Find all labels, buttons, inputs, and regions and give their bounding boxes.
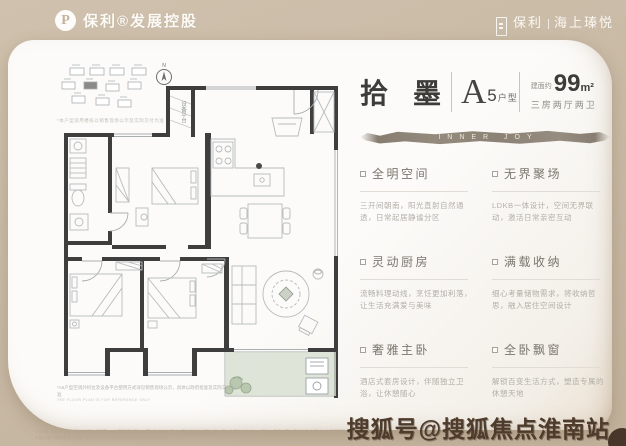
brand-left: P 保利®发展控股 [55, 10, 198, 31]
unit-letter: A [461, 76, 486, 108]
kitchen [211, 118, 302, 196]
page: P 保利®发展控股 保利海上瑧悦 · · · · · · · [0, 0, 626, 446]
room-layout: 三房两厅两卫 [531, 98, 597, 111]
area-number: 99 [554, 73, 581, 95]
plan-disclaimer-line1: *A5户型空调外机位及设备平台使用方式详见销售现场公示，具体以政府批复及实际交付… [57, 384, 237, 398]
divider [451, 72, 452, 112]
dining-table [240, 204, 290, 238]
divider [492, 367, 600, 368]
logo-letter: P [61, 13, 70, 29]
feature-item: 灵动厨房 流畅料理动线，烹饪更加利落，让生活充满爱与美味 [360, 253, 484, 341]
banner-text: INNER JOY [431, 134, 538, 141]
feature-desc: 酒店式套房设计，伴随独立卫浴，让休憩随心 [360, 376, 476, 400]
feature-desc: 细心考量储物需求，将收纳哲思，融入居住空间设计 [492, 288, 608, 312]
divider [492, 279, 600, 280]
divider [360, 191, 468, 192]
feature-title: 全明空间 [372, 165, 430, 182]
feature-desc: 解锁百变生活方式，塑造专属的休憩天地 [492, 376, 608, 400]
brand-right-subtext: · · · · · · · [546, 32, 614, 36]
bedroom-mid [116, 168, 198, 226]
unit-title-row: 拾 墨 A5户型 建面约99m² 三房两厅两卫 [360, 66, 614, 118]
compass-label: N [162, 63, 166, 69]
square-bullet-icon [360, 171, 366, 177]
brand-right-poly: 保利 [513, 15, 543, 30]
brand-right: 保利海上瑧悦 · · · · · · · [496, 16, 614, 37]
bedroom-master [70, 262, 142, 328]
brush-banner: INNER JOY [360, 130, 610, 145]
balcony [225, 352, 336, 396]
feature-desc: LDKB一体设计，空间无界联动，激活日常亲密互动 [492, 200, 608, 224]
main-card: N *本户型适用楼栋以销售现场公示及实际交付为准 [8, 40, 612, 430]
feature-title: 全卧飘窗 [504, 341, 562, 358]
feature-desc: 三开间朝南，阳光直射自然通透，日常起居静谧分区 [360, 200, 476, 224]
plan-disclaimer-line2: THE FLOOR PLAN IS FOR REFERENCE ONLY [57, 398, 237, 404]
divider [519, 72, 520, 112]
bathroom-fixtures [70, 139, 88, 230]
floor-plan: 设备平台 [56, 82, 348, 402]
feature-item: 全明空间 三开间朝南，阳光直射自然通透，日常起居静谧分区 [360, 165, 484, 253]
door-arcs [82, 90, 318, 281]
feature-title: 灵动厨房 [372, 253, 430, 270]
feature-title: 奢雅主卧 [372, 341, 430, 358]
unit-type-label: 户型 [498, 91, 518, 104]
equipment-platform-label: 设备平台 [180, 100, 187, 125]
entry-closet [314, 92, 334, 132]
brand-left-text: 保利®发展控股 [83, 10, 198, 31]
walls [64, 86, 338, 398]
feature-item: 无界聚场 LDKB一体设计，空间无界联动，激活日常亲密互动 [492, 165, 616, 253]
unit-info: 拾 墨 A5户型 建面约99m² 三房两厅两卫 INNER JOY 全 [360, 66, 614, 429]
divider [360, 367, 468, 368]
feature-title: 满载收纳 [504, 253, 562, 270]
bedroom-second [148, 264, 222, 328]
brand-right-text: 保利海上瑧悦 [513, 16, 614, 30]
feature-title: 无界聚场 [504, 165, 562, 182]
seal-icon [496, 17, 507, 36]
poly-logo-icon: P [55, 10, 76, 31]
brand-right-project: 海上瑧悦 [554, 15, 614, 30]
unit-type: A5户型 [461, 76, 518, 108]
feature-desc: 流畅料理动线，烹饪更加利落，让生活充满爱与美味 [360, 288, 476, 312]
sohu-watermark: 搜狐号@搜狐焦点淮南站 [347, 410, 610, 444]
unit-name: 拾 墨 [360, 72, 450, 112]
corner-seal-icon [608, 428, 626, 446]
divider [548, 19, 549, 29]
divider [360, 279, 468, 280]
equipment-platform: 设备平台 [170, 96, 191, 128]
feature-grid: 全明空间 三开间朝南，阳光直射自然通透，日常起居静谧分区 无界聚场 LDKB一体… [360, 165, 614, 429]
area-unit: m² [580, 82, 593, 94]
living-room [232, 266, 323, 336]
square-bullet-icon [360, 347, 366, 353]
unit-area: 建面约99m² 三房两厅两卫 [531, 73, 597, 111]
plan-disclaimer: *A5户型空调外机位及设备平台使用方式详见销售现场公示，具体以政府批复及实际交付… [57, 384, 237, 404]
feature-item: 满载收纳 细心考量储物需求，将收纳哲思，融入居住空间设计 [492, 253, 616, 341]
square-bullet-icon [492, 171, 498, 177]
square-bullet-icon [492, 259, 498, 265]
square-bullet-icon [360, 259, 366, 265]
divider [492, 191, 600, 192]
area-prefix: 建面约 [531, 81, 552, 91]
square-bullet-icon [492, 347, 498, 353]
unit-number: 5 [487, 86, 496, 106]
